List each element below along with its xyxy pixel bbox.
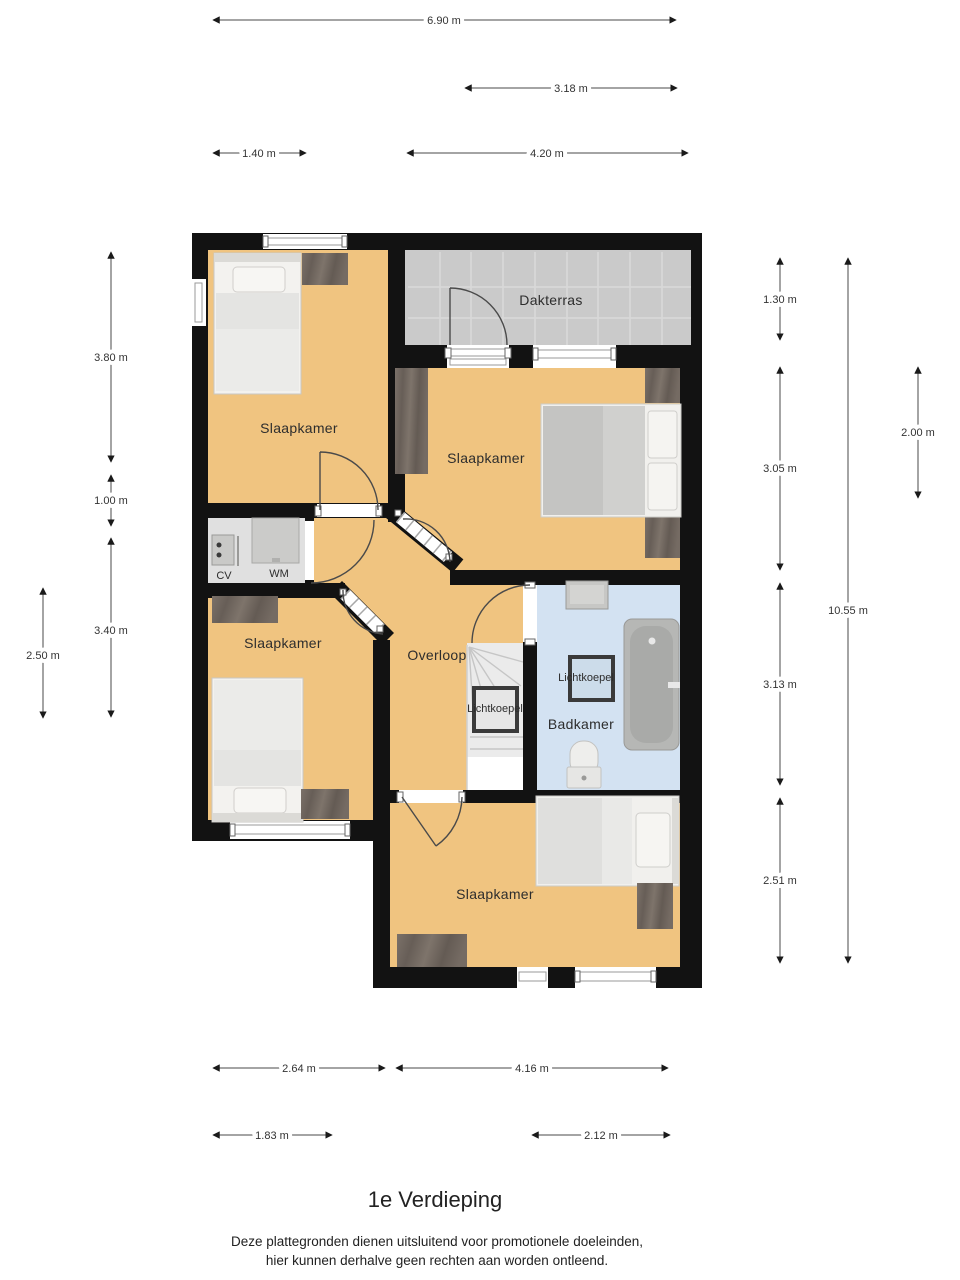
window [192, 279, 206, 326]
label-skylight-bathroom: Lichtkoepel [558, 672, 614, 684]
bathtub-icon [624, 619, 680, 750]
dimension-label: 1.83 m [255, 1130, 289, 1142]
dimension-label: 1.40 m [242, 148, 276, 160]
room-label-bedroom-right: Slaapkamer [447, 450, 525, 466]
dimension-label: 1.00 m [94, 495, 128, 507]
window [575, 967, 656, 994]
label-washer: WM [269, 568, 289, 580]
page-title: 1e Verdieping [368, 1187, 503, 1212]
bed-icon [536, 796, 679, 886]
wardrobe-icon [302, 253, 348, 285]
dimension-label: 2.50 m [26, 650, 60, 662]
disclaimer-line1: Deze plattegronden dienen uitsluitend vo… [231, 1234, 643, 1249]
wardrobe-icon [397, 934, 467, 967]
window [517, 967, 548, 994]
dimension-label: 2.00 m [901, 427, 935, 439]
disclaimer-line2: hier kunnen derhalve geen rechten aan wo… [266, 1253, 608, 1268]
room-label-terrace: Dakterras [519, 292, 582, 308]
room-label-bedroom-mid-left: Slaapkamer [244, 635, 322, 651]
floorplan-drawing: Slaapkamer Dakterras Slaapkamer Slaapkam… [0, 0, 960, 1280]
dimension-label: 3.13 m [763, 679, 797, 691]
dimension-label: 3.80 m [94, 352, 128, 364]
washing-machine-icon [252, 518, 299, 563]
wardrobe-icon [645, 368, 680, 403]
toilet-icon [567, 741, 601, 788]
dimension-label: 2.64 m [282, 1063, 316, 1075]
room-label-bedroom-top-left: Slaapkamer [260, 420, 338, 436]
wardrobe-icon [637, 883, 673, 929]
dimension-label: 3.18 m [554, 83, 588, 95]
dimension-label: 1.30 m [763, 294, 797, 306]
terrace-door-opening [445, 345, 511, 368]
bed-icon [214, 253, 301, 394]
label-skylight-stairs: Lichtkoepel [467, 703, 523, 715]
dimension-label: 2.12 m [584, 1130, 618, 1142]
sink-icon [566, 581, 608, 609]
dimension-label: 4.16 m [515, 1063, 549, 1075]
room-label-bathroom: Badkamer [548, 716, 614, 732]
bed-icon [541, 404, 681, 517]
boiler-icon [212, 535, 238, 566]
window [230, 821, 350, 839]
floorplan-page: Slaapkamer Dakterras Slaapkamer Slaapkam… [0, 0, 960, 1280]
window [533, 345, 616, 368]
wardrobe-icon [301, 789, 349, 819]
wardrobe-icon [395, 368, 428, 474]
room-label-bedroom-bottom: Slaapkamer [456, 886, 534, 902]
dimension-label: 3.40 m [94, 625, 128, 637]
dimension-label: 10.55 m [828, 605, 868, 617]
dimension-label: 3.05 m [763, 463, 797, 475]
dimension-label: 2.51 m [763, 875, 797, 887]
room-label-landing: Overloop [407, 647, 466, 663]
dimension-label: 6.90 m [427, 15, 461, 27]
bed-icon [212, 678, 303, 822]
dimension-label: 4.20 m [530, 148, 564, 160]
wardrobe-icon [212, 596, 278, 623]
window [263, 234, 347, 249]
label-boiler: CV [216, 570, 232, 582]
